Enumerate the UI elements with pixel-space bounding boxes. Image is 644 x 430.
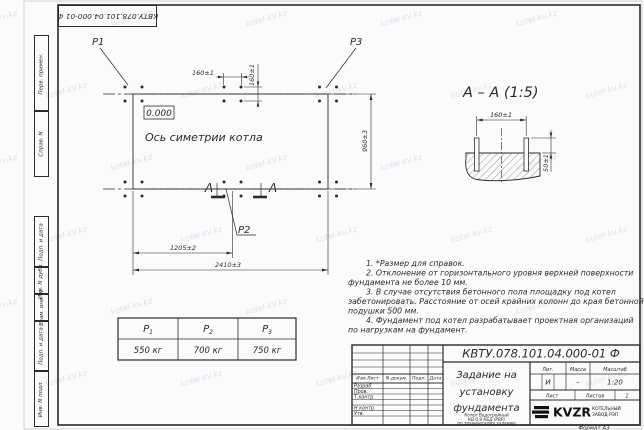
load-label-p2: P2 xyxy=(238,225,250,236)
rev-header-data: Дата xyxy=(429,376,442,382)
anchor-bolt-right xyxy=(524,138,529,171)
lit-mass-scale: Лит. Масса Масштаб И – 1:20 Лист Листов … xyxy=(541,367,628,400)
signature-rows: Разраб. Пров. Т.контр. Н.контр. Утв. xyxy=(354,384,375,418)
format-label: Формат А3 xyxy=(578,426,610,430)
rev-header-ndoc: N докум. xyxy=(386,376,407,382)
sign-row-razrab: Разраб. xyxy=(354,384,373,390)
level-mark: 0.000 xyxy=(146,109,172,119)
drawing-title: Задание на установку фундамента Котел Во… xyxy=(453,370,519,426)
scale-header: Масштаб xyxy=(603,367,627,373)
notes-block: 1. *Размер для справок. 2. Отклонение от… xyxy=(348,259,644,335)
section-letter-right: А xyxy=(268,181,277,195)
load-table-header-p1: P1 xyxy=(143,324,153,336)
note-line: 1. *Размер для справок. xyxy=(366,259,465,268)
load-table: P1 P2 P3 550 кг 700 кг 750 кг xyxy=(118,318,296,360)
section-letter-left: А xyxy=(204,181,213,195)
subtitle-line-3: по техническому заданию xyxy=(457,421,516,426)
sheet-frame xyxy=(24,1,642,429)
sheets-label: Листов xyxy=(585,394,605,400)
leader-p1 xyxy=(100,48,128,85)
drawing-sheet: kotel-kv.kzkotel-kv.kzkotel-kv.kzkotel-k… xyxy=(0,0,644,430)
plan-view: P1 P3 P2 0.000 Ось симетрии котла А А xyxy=(92,37,376,275)
sheet-label: Лист xyxy=(545,394,560,400)
kvzr-logo-text: KVZR xyxy=(553,405,591,420)
title-block: КВТУ.078.101.04.000-01 Ф Изм.Лист N доку… xyxy=(352,345,640,430)
note-line: подушки 500 мм. xyxy=(348,307,419,316)
company-line-1: КОТЕЛЬНЫЙ xyxy=(592,405,621,412)
company-line-2: ЗАВОД РЭП xyxy=(592,412,618,418)
sign-row-tkontr: Т.контр. xyxy=(354,395,375,401)
dim-text-section-160: 160±1 xyxy=(490,111,512,119)
leader-p3 xyxy=(326,48,356,88)
load-label-p1: P1 xyxy=(92,37,104,48)
mass-value: – xyxy=(576,378,580,386)
lit-header: Лит. xyxy=(541,367,554,373)
section-view: А – А (1:5) 160±1 50±1 xyxy=(462,85,556,184)
dim-lengths: 1205±2 2410±3 xyxy=(133,191,328,275)
anchor-bolt-left xyxy=(475,138,480,171)
drawing-canvas: P1 P3 P2 0.000 Ось симетрии котла А А xyxy=(0,0,644,430)
dim-text-1205: 1205±2 xyxy=(170,244,196,252)
kvzr-logo-icon xyxy=(532,406,549,418)
note-line: 2. Отклонение от горизонтального уровня … xyxy=(366,269,633,278)
load-label-p3: P3 xyxy=(350,37,362,48)
note-line: забетонировать. Расстояние от осей крайн… xyxy=(348,297,644,306)
revision-headers: Изм.Лист N докум. Подп. Дата xyxy=(356,376,441,382)
rev-header-izm: Изм.Лист xyxy=(356,376,379,382)
symmetry-axis-label: Ось симетрии котла xyxy=(145,131,263,144)
dim-bolt-horizontal: 160±1 xyxy=(192,69,249,85)
sign-row-nkontr: Н.контр. xyxy=(354,406,375,412)
note-line: 4. Фундамент под котел разрабатывает про… xyxy=(366,316,633,325)
note-line: по нагрузкам на фундамент. xyxy=(348,326,468,335)
dim-bolt-vertical: 160±1 xyxy=(244,64,262,107)
load-value-p1: 550 кг xyxy=(134,346,163,356)
sign-row-prov: Пров. xyxy=(354,389,368,395)
dim-text-2410: 2410±3 xyxy=(215,261,241,269)
title-line-2: установку xyxy=(459,387,515,398)
dim-width-960: 960±3 xyxy=(331,94,376,189)
lit-value: И xyxy=(545,379,551,387)
load-table-header-p2: P2 xyxy=(203,324,213,336)
section-view-title: А – А (1:5) xyxy=(462,85,539,101)
load-table-header-p3: P3 xyxy=(262,324,272,336)
note-line: фундамента не более 10 мм. xyxy=(348,278,468,287)
scale-value: 1:20 xyxy=(607,379,623,387)
load-value-p2: 700 кг xyxy=(194,346,223,356)
note-line: 3. В случае отсутствия бетонного пола пл… xyxy=(366,288,616,297)
dim-text-160v: 160±1 xyxy=(248,64,256,86)
company-logo: KVZR КОТЕЛЬНЫЙ ЗАВОД РЭП xyxy=(532,405,621,420)
title-block-doc-number: КВТУ.078.101.04.000-01 Ф xyxy=(462,347,620,361)
mass-header: Масса xyxy=(570,367,586,373)
rev-header-podp: Подп. xyxy=(412,376,426,382)
dim-text-160h: 160±1 xyxy=(192,69,214,77)
sign-row-utv: Утв. xyxy=(354,411,364,417)
dim-text-960: 960±3 xyxy=(361,130,369,152)
dim-text-section-50: 50±1 xyxy=(542,154,550,172)
title-line-1: Задание на xyxy=(456,370,517,381)
load-value-p3: 750 кг xyxy=(253,346,282,356)
sheets-value: 1 xyxy=(625,394,628,400)
